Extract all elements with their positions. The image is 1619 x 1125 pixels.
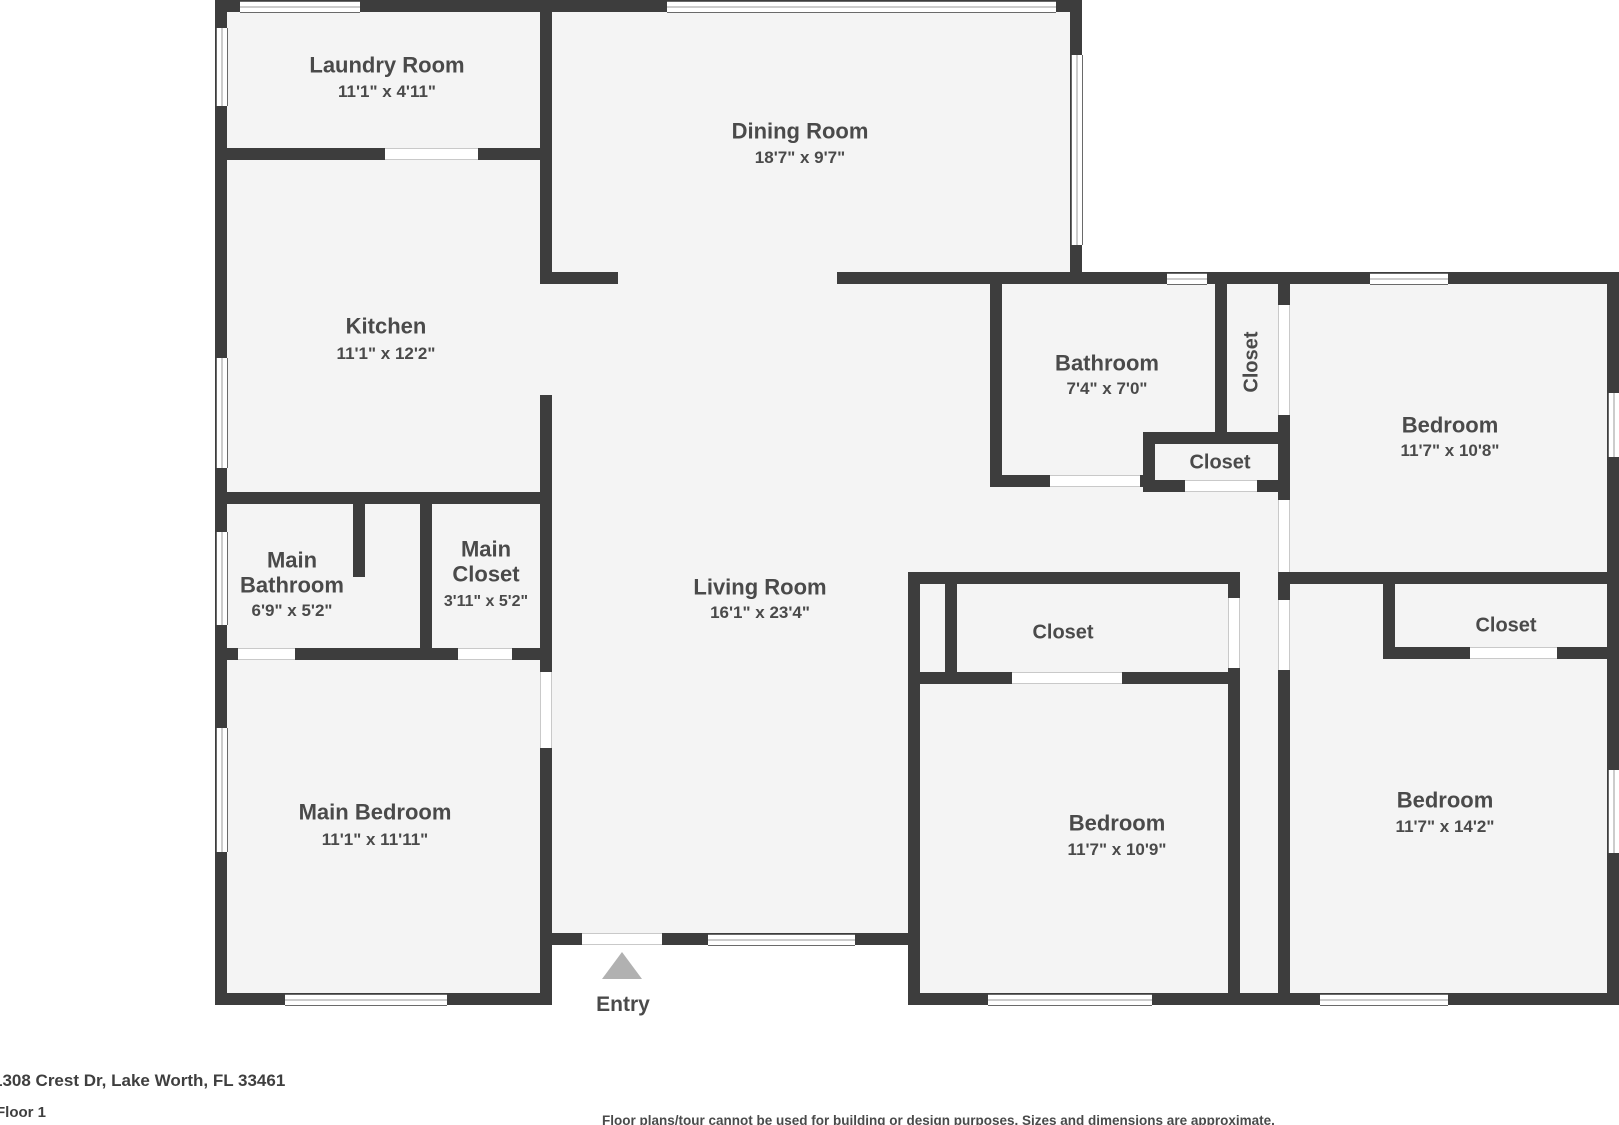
wall-x1278-d — [1278, 670, 1290, 1005]
floor-fill-hall — [990, 487, 1278, 584]
wall-main-bedroom-right-a — [540, 660, 552, 672]
window-tr-bedroom-top — [1370, 273, 1448, 285]
wall-main-closet-right — [540, 504, 552, 660]
wall-hcloset-bottom-a — [1143, 480, 1185, 492]
window-laundry-left — [216, 28, 228, 106]
wall-bathroom-bottom-a — [990, 475, 1050, 487]
door-entry-opening — [582, 933, 662, 945]
wall-right-exterior — [1607, 272, 1619, 1005]
door-right-closet — [1470, 647, 1557, 659]
door-mid-bedroom-hall — [1228, 598, 1240, 668]
room-dims-bedroom-middle: 11'7" x 10'9" — [1068, 840, 1167, 860]
door-vcloset — [1278, 305, 1290, 415]
room-label-bedroom-middle: Bedroom — [1069, 810, 1166, 835]
room-dims-dining: 18'7" x 9'7" — [755, 148, 845, 168]
entry-arrow-icon — [602, 952, 642, 979]
window-laundry-top — [240, 1, 360, 13]
wall-midcloset-bottom-a — [920, 672, 1012, 684]
window-main-bedroom-left — [216, 728, 228, 852]
wall-x1278-b — [1278, 415, 1290, 500]
room-label-main-closet: Main Closet — [441, 537, 531, 588]
wall-living-top — [837, 272, 1082, 284]
room-label-kitchen: Kitchen — [346, 313, 427, 338]
closet-label-middle: Closet — [1032, 622, 1093, 645]
room-label-dining: Dining Room — [732, 118, 869, 143]
window-tr-bedroom-right — [1608, 393, 1619, 457]
wall-main-bath-bottom-b — [295, 648, 458, 660]
wall-laundry-kitchen-left — [215, 148, 385, 160]
window-br-bedroom-right — [1608, 770, 1619, 853]
footer-floor-label: Floor 1 — [0, 1104, 46, 1121]
wall-main-bath-bottom-c — [512, 648, 552, 660]
wall-main-bedroom-right-b — [540, 748, 552, 1005]
room-dims-main-bedroom: 11'1" x 11'11" — [322, 830, 428, 850]
room-dims-bedroom-bottom-right: 11'7" x 14'2" — [1396, 817, 1495, 837]
closet-label-near-bathroom: Closet — [1189, 452, 1250, 475]
room-dims-bedroom-top-right: 11'7" x 10'8" — [1401, 441, 1500, 461]
room-dims-bathroom: 7'4" x 7'0" — [1067, 379, 1148, 399]
wall-main-bath-closet-divider — [420, 504, 432, 660]
door-main-bedroom — [540, 672, 552, 748]
door-bathroom — [1050, 475, 1140, 487]
room-dims-living: 16'1" x 23'4" — [710, 603, 810, 623]
wall-midbedroom-left — [908, 572, 920, 1005]
wall-main-bath-bottom-a — [215, 648, 238, 660]
window-living-bottom — [708, 934, 855, 946]
room-label-main-bathroom: Main Bathroom — [222, 548, 362, 599]
footer-address: 1308 Crest Dr, Lake Worth, FL 33461 — [0, 1071, 285, 1091]
entry-label: Entry — [596, 993, 650, 1017]
footer-disclaimer: Floor plans/tour cannot be used for buil… — [602, 1113, 1275, 1125]
wall-rcloset-bottom-a — [1383, 647, 1470, 659]
door-main-bathroom — [238, 648, 295, 660]
window-br-bedroom-bottom — [1320, 994, 1448, 1006]
floor-fill-right-wing — [1278, 284, 1607, 1005]
room-label-laundry: Laundry Room — [309, 52, 464, 77]
wall-bathroom-left — [990, 284, 1002, 487]
room-dims-main-bathroom: 6'9" x 5'2" — [252, 601, 333, 621]
window-dining-top — [667, 1, 1056, 13]
room-label-bedroom-top-right: Bedroom — [1402, 412, 1499, 437]
room-label-bathroom: Bathroom — [1055, 350, 1159, 375]
room-dims-main-closet: 3'11" x 5'2" — [444, 593, 528, 611]
window-kitchen-left — [216, 358, 228, 468]
door-laundry — [385, 148, 478, 160]
floor-plan: Laundry Room 11'1" x 4'11" Dining Room 1… — [0, 0, 1619, 1125]
wall-dining-living-stub — [540, 272, 618, 284]
floor-fill-hall-upper — [908, 284, 1002, 572]
window-main-bedroom-bottom — [285, 994, 447, 1006]
room-label-living: Living Room — [693, 574, 826, 599]
door-br-bedroom — [1278, 600, 1290, 670]
wall-x1228-b — [1228, 668, 1240, 1005]
door-mid-closet — [1012, 672, 1122, 684]
wall-bottom-living-left — [552, 933, 582, 945]
wall-right-section-top — [1082, 272, 1619, 284]
wall-kitchen-dining-divider — [540, 0, 552, 284]
closet-label-vertical: Closet — [1241, 331, 1264, 392]
wall-hcloset-top — [1143, 432, 1290, 444]
door-main-closet — [458, 648, 512, 660]
closet-label-right: Closet — [1475, 615, 1536, 638]
window-dining-right — [1071, 55, 1083, 245]
wall-vcloset-left — [1215, 284, 1227, 432]
wall-rcloset-bottom-b — [1557, 647, 1619, 659]
room-label-main-bedroom: Main Bedroom — [299, 799, 452, 824]
wall-x1278-c — [1278, 584, 1290, 600]
wall-kitchen-right-lower — [540, 395, 552, 504]
door-tr-bedroom — [1278, 500, 1290, 572]
room-dims-kitchen: 11'1" x 12'2" — [337, 344, 436, 364]
wall-x1228-a — [1228, 584, 1240, 598]
door-hcloset — [1185, 480, 1257, 492]
wall-midcloset-bottom-b — [1122, 672, 1240, 684]
wall-midcloset-left — [945, 584, 957, 672]
wall-tr-bedroom-bottom — [1278, 572, 1619, 584]
wall-kitchen-bottom — [215, 492, 552, 504]
room-label-bedroom-bottom-right: Bedroom — [1397, 787, 1494, 812]
wall-midcloset-top — [908, 572, 1240, 584]
window-mid-bedroom-bottom — [988, 994, 1152, 1006]
room-dims-laundry: 11'1" x 4'11" — [338, 82, 436, 102]
window-bath-top — [1167, 273, 1207, 285]
wall-x1278-a — [1278, 272, 1290, 305]
